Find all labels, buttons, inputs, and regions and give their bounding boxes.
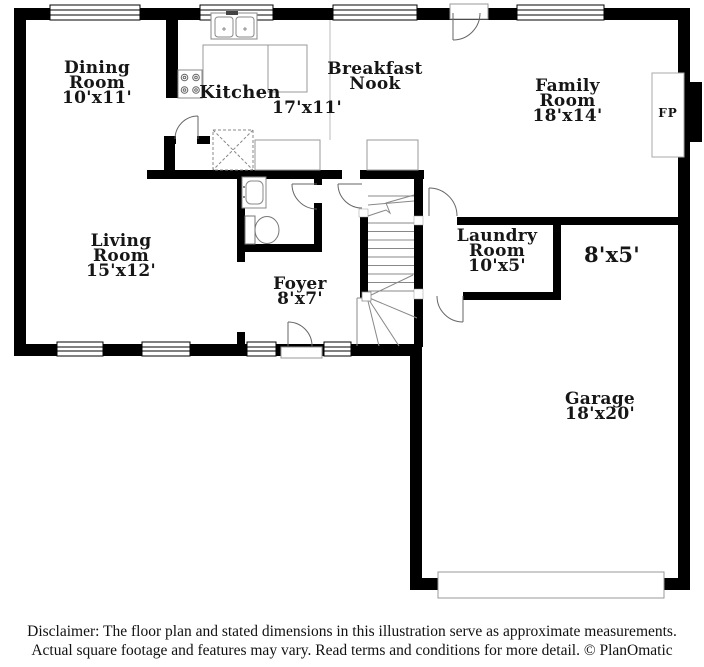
garage-door-icon — [438, 572, 664, 598]
window-icon — [247, 342, 276, 356]
wall-powder-right — [314, 203, 322, 252]
window-icon — [142, 342, 190, 356]
room-dims: 10'x5' — [451, 259, 543, 274]
window-icon — [333, 5, 417, 20]
room-name: Family Room — [520, 79, 615, 109]
room-dims: 8'x5' — [573, 245, 651, 265]
door-jamb — [359, 209, 368, 217]
wall-laundry-bottom — [463, 292, 561, 300]
room-dims: 15'x12' — [76, 264, 166, 279]
disclaimer-line-1: Disclaimer: The floor plan and stated di… — [0, 622, 704, 641]
floor-plan-page: Dining Room 10'x11' Kitchen 17'x11' Brea… — [0, 0, 704, 667]
room-dims: 8'x7' — [262, 292, 338, 307]
room-dims: 18'x20' — [550, 407, 650, 422]
room-label-family: Family Room 18'x14' — [520, 79, 615, 124]
room-name: Kitchen — [196, 85, 284, 100]
kitchen-sink-icon — [211, 11, 257, 39]
back-door-frame — [450, 4, 488, 19]
room-label-kitchen: Kitchen — [196, 85, 284, 100]
fireplace-label: FP — [654, 107, 682, 119]
door-jamb — [414, 216, 423, 225]
wall-garage-left — [410, 344, 422, 590]
wall-stairs-top — [360, 170, 424, 179]
wall-kitchen-divider — [166, 20, 178, 98]
wall-dining-door-left — [164, 136, 176, 144]
counter-icon — [255, 140, 320, 170]
wall-storage-left — [553, 225, 561, 292]
room-label-storage: 8'x5' — [573, 245, 651, 265]
room-label-breakfast-nook: Breakfast Nook — [327, 62, 423, 92]
wall-right-lower — [678, 142, 690, 590]
pantry-x-icon — [213, 130, 253, 170]
door-swing-icon — [429, 188, 457, 216]
door-swing-icon — [288, 322, 312, 346]
wall-left — [14, 8, 26, 356]
door-swing-icon — [292, 184, 317, 209]
wall-laundry-top — [457, 217, 678, 225]
room-label-dining: Dining Room 10'x11' — [52, 61, 142, 106]
room-label-living: Living Room 15'x12' — [76, 234, 166, 279]
room-dims: 10'x11' — [52, 91, 142, 106]
window-icon — [57, 342, 103, 356]
window-icon — [324, 342, 351, 356]
room-name: Laundry Room — [451, 229, 543, 259]
room-label-laundry: Laundry Room 10'x5' — [451, 229, 543, 274]
room-name: Dining Room — [52, 61, 142, 91]
window-icon — [50, 5, 140, 20]
window-icon — [517, 5, 604, 20]
wall-right-upper — [678, 8, 690, 82]
room-label-foyer: Foyer 8'x7' — [262, 277, 338, 307]
front-door-threshold — [281, 347, 322, 358]
room-label-garage: Garage 18'x20' — [550, 392, 650, 422]
door-swing-icon — [338, 184, 362, 208]
toilet-icon — [245, 216, 279, 244]
wall-powder-bottom — [237, 244, 322, 252]
room-dims: 17'x11' — [272, 101, 342, 116]
fireplace-abbr: FP — [654, 107, 682, 119]
disclaimer-line-2: Actual square footage and features may v… — [0, 641, 704, 660]
thresholds — [281, 4, 684, 598]
room-dims-kitchen: 17'x11' — [272, 101, 342, 116]
bathroom-sink-icon — [242, 177, 266, 208]
disclaimer: Disclaimer: The floor plan and stated di… — [0, 622, 704, 660]
door-swing-icon — [437, 296, 463, 322]
closet-icon — [367, 140, 418, 170]
door-jamb — [414, 289, 423, 299]
wall-stairs-left — [360, 217, 368, 298]
door-swing-icon — [175, 116, 198, 139]
room-name: Living Room — [76, 234, 166, 264]
wall-stairs-right — [414, 179, 423, 347]
room-dims: 18'x14' — [520, 109, 615, 124]
room-name: Breakfast Nook — [327, 62, 423, 92]
wall-dining-door-right — [197, 136, 210, 144]
wall-foyer-stub — [237, 332, 245, 356]
